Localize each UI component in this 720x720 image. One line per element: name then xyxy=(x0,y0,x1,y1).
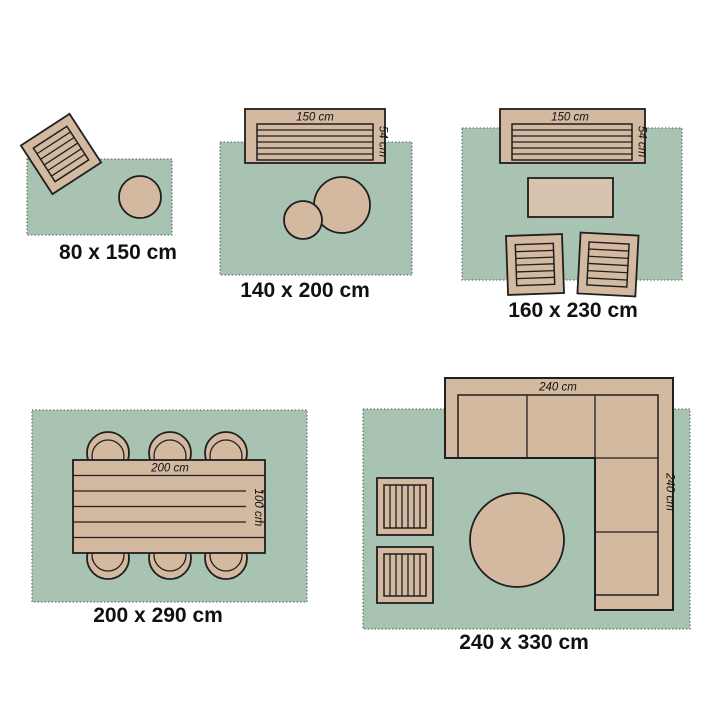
round-ottoman-large xyxy=(314,177,370,233)
sofa-width-label: 150 cm xyxy=(296,112,334,124)
sofa-depth-label: 54 cm xyxy=(377,126,389,158)
side-table-lower xyxy=(377,547,433,603)
sofa-depth-label: 54 cm xyxy=(636,126,648,158)
table-depth-label: 100 cm xyxy=(252,489,264,527)
armchair-right xyxy=(577,233,638,297)
size-caption: 240 x 330 cm xyxy=(459,631,589,654)
armchair-left xyxy=(506,234,564,295)
diagram-160x230: 150 cm 54 cm 160 x 230 cm xyxy=(462,109,682,322)
rug-size-guide: 80 x 150 cm 150 cm 54 cm 140 x 200 cm 15… xyxy=(0,0,720,720)
diagram-140x200: 150 cm 54 cm 140 x 200 cm xyxy=(220,109,412,302)
round-ottoman-small xyxy=(284,201,322,239)
slatted-bench-sofa: 150 cm 54 cm xyxy=(500,109,648,163)
slatted-bench-sofa: 150 cm 54 cm xyxy=(245,109,389,163)
rug-size-guide-illustration: 80 x 150 cm 150 cm 54 cm 140 x 200 cm 15… xyxy=(0,0,720,720)
dining-table: 200 cm 100 cm xyxy=(73,460,265,553)
size-caption: 80 x 150 cm xyxy=(59,241,177,264)
size-caption: 160 x 230 cm xyxy=(508,299,638,322)
sofa-width-label: 240 cm xyxy=(538,382,577,394)
size-caption: 200 x 290 cm xyxy=(93,604,223,627)
diagram-200x290: 200 cm 100 cm 200 x 290 cm xyxy=(32,410,307,627)
diagram-80x150: 80 x 150 cm xyxy=(21,114,177,264)
round-ottoman xyxy=(119,176,161,218)
coffee-table xyxy=(528,178,613,217)
sofa-depth-label: 240 cm xyxy=(664,472,676,511)
diagram-240x330: 240 cm 240 cm 240 x 330 cm xyxy=(363,378,690,654)
sofa-width-label: 150 cm xyxy=(551,112,589,124)
side-table-upper xyxy=(377,478,433,535)
table-width-label: 200 cm xyxy=(150,463,189,475)
round-table xyxy=(470,493,564,587)
size-caption: 140 x 200 cm xyxy=(240,279,370,302)
